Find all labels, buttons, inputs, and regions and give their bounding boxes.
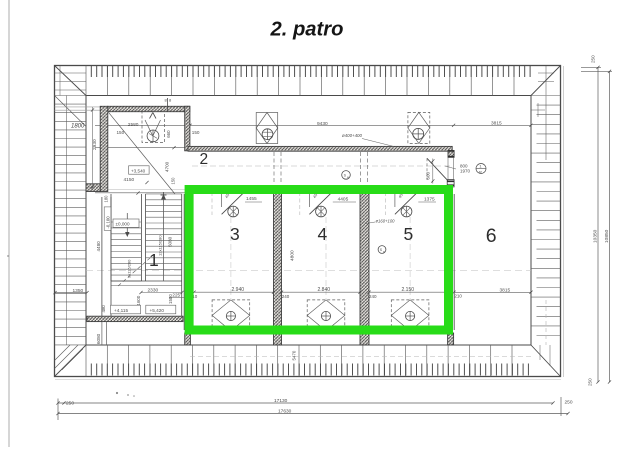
svg-text:3815: 3815	[491, 120, 502, 126]
svg-text:8: 8	[169, 98, 172, 103]
svg-text:600: 600	[426, 171, 431, 179]
svg-text:2330: 2330	[148, 288, 159, 294]
svg-text:5080: 5080	[168, 236, 173, 247]
svg-text:250: 250	[565, 399, 573, 405]
svg-text:2930: 2930	[92, 139, 98, 150]
svg-text:4150: 4150	[124, 177, 135, 183]
svg-text:240: 240	[369, 294, 377, 299]
svg-text:480: 480	[101, 305, 106, 313]
svg-text:2.150: 2.150	[402, 287, 415, 293]
svg-text:ø160+100: ø160+100	[376, 219, 396, 224]
svg-text:1: 1	[479, 163, 482, 168]
svg-text:2: 2	[200, 151, 209, 168]
svg-text:6080: 6080	[96, 333, 101, 344]
svg-text:12x115/280: 12x115/280	[158, 235, 163, 256]
svg-text:5470: 5470	[292, 350, 297, 360]
svg-text:1455: 1455	[246, 196, 257, 202]
svg-text:+3,540: +3,540	[131, 168, 146, 173]
svg-text:250: 250	[66, 400, 74, 406]
svg-text:250: 250	[588, 378, 593, 386]
svg-text:3815: 3815	[500, 287, 511, 293]
svg-text:4700: 4700	[165, 161, 170, 172]
svg-text:2580: 2580	[128, 122, 139, 128]
svg-text:1800: 1800	[71, 124, 85, 130]
svg-text:1350: 1350	[73, 288, 84, 294]
svg-text:6: 6	[486, 225, 497, 247]
svg-text:4480: 4480	[96, 241, 101, 252]
svg-text:a: a	[383, 250, 385, 254]
svg-text:R: R	[479, 169, 482, 174]
svg-text:150: 150	[117, 130, 125, 135]
svg-text:17130: 17130	[274, 398, 288, 404]
svg-text:+5,420: +5,420	[150, 308, 165, 313]
svg-text:8: 8	[165, 98, 168, 103]
svg-text:+4,115: +4,115	[114, 308, 129, 313]
svg-text:1375: 1375	[424, 196, 435, 202]
svg-text:3: 3	[230, 224, 240, 244]
svg-text:4405: 4405	[338, 196, 349, 202]
svg-text:10850: 10850	[604, 229, 610, 243]
svg-text:180: 180	[104, 195, 109, 203]
svg-text:1600: 1600	[136, 295, 141, 305]
svg-text:225: 225	[172, 293, 180, 298]
svg-text:9x115/280: 9x115/280	[127, 259, 132, 278]
svg-text:4: 4	[318, 224, 328, 244]
svg-text:-0,100: -0,100	[106, 216, 111, 229]
svg-text:2.840: 2.840	[318, 287, 331, 293]
svg-text:150: 150	[171, 177, 176, 185]
svg-text:1970: 1970	[460, 169, 471, 174]
svg-text:9430: 9430	[317, 121, 328, 127]
svg-text:240: 240	[282, 294, 290, 299]
svg-text:2. patro: 2. patro	[269, 19, 343, 41]
svg-text:250: 250	[591, 55, 596, 63]
svg-text:10350: 10350	[593, 229, 599, 243]
svg-text:4800: 4800	[290, 250, 296, 261]
svg-text:210: 210	[454, 294, 462, 299]
svg-text:1500: 1500	[168, 294, 173, 304]
svg-text:2.940: 2.940	[232, 287, 245, 293]
svg-text:150: 150	[192, 130, 200, 135]
svg-text:ø400+400: ø400+400	[342, 133, 362, 138]
svg-text:±0,000: ±0,000	[116, 222, 130, 227]
svg-text:660: 660	[166, 130, 171, 138]
svg-text:5: 5	[404, 224, 414, 244]
svg-text:17630: 17630	[278, 408, 292, 414]
